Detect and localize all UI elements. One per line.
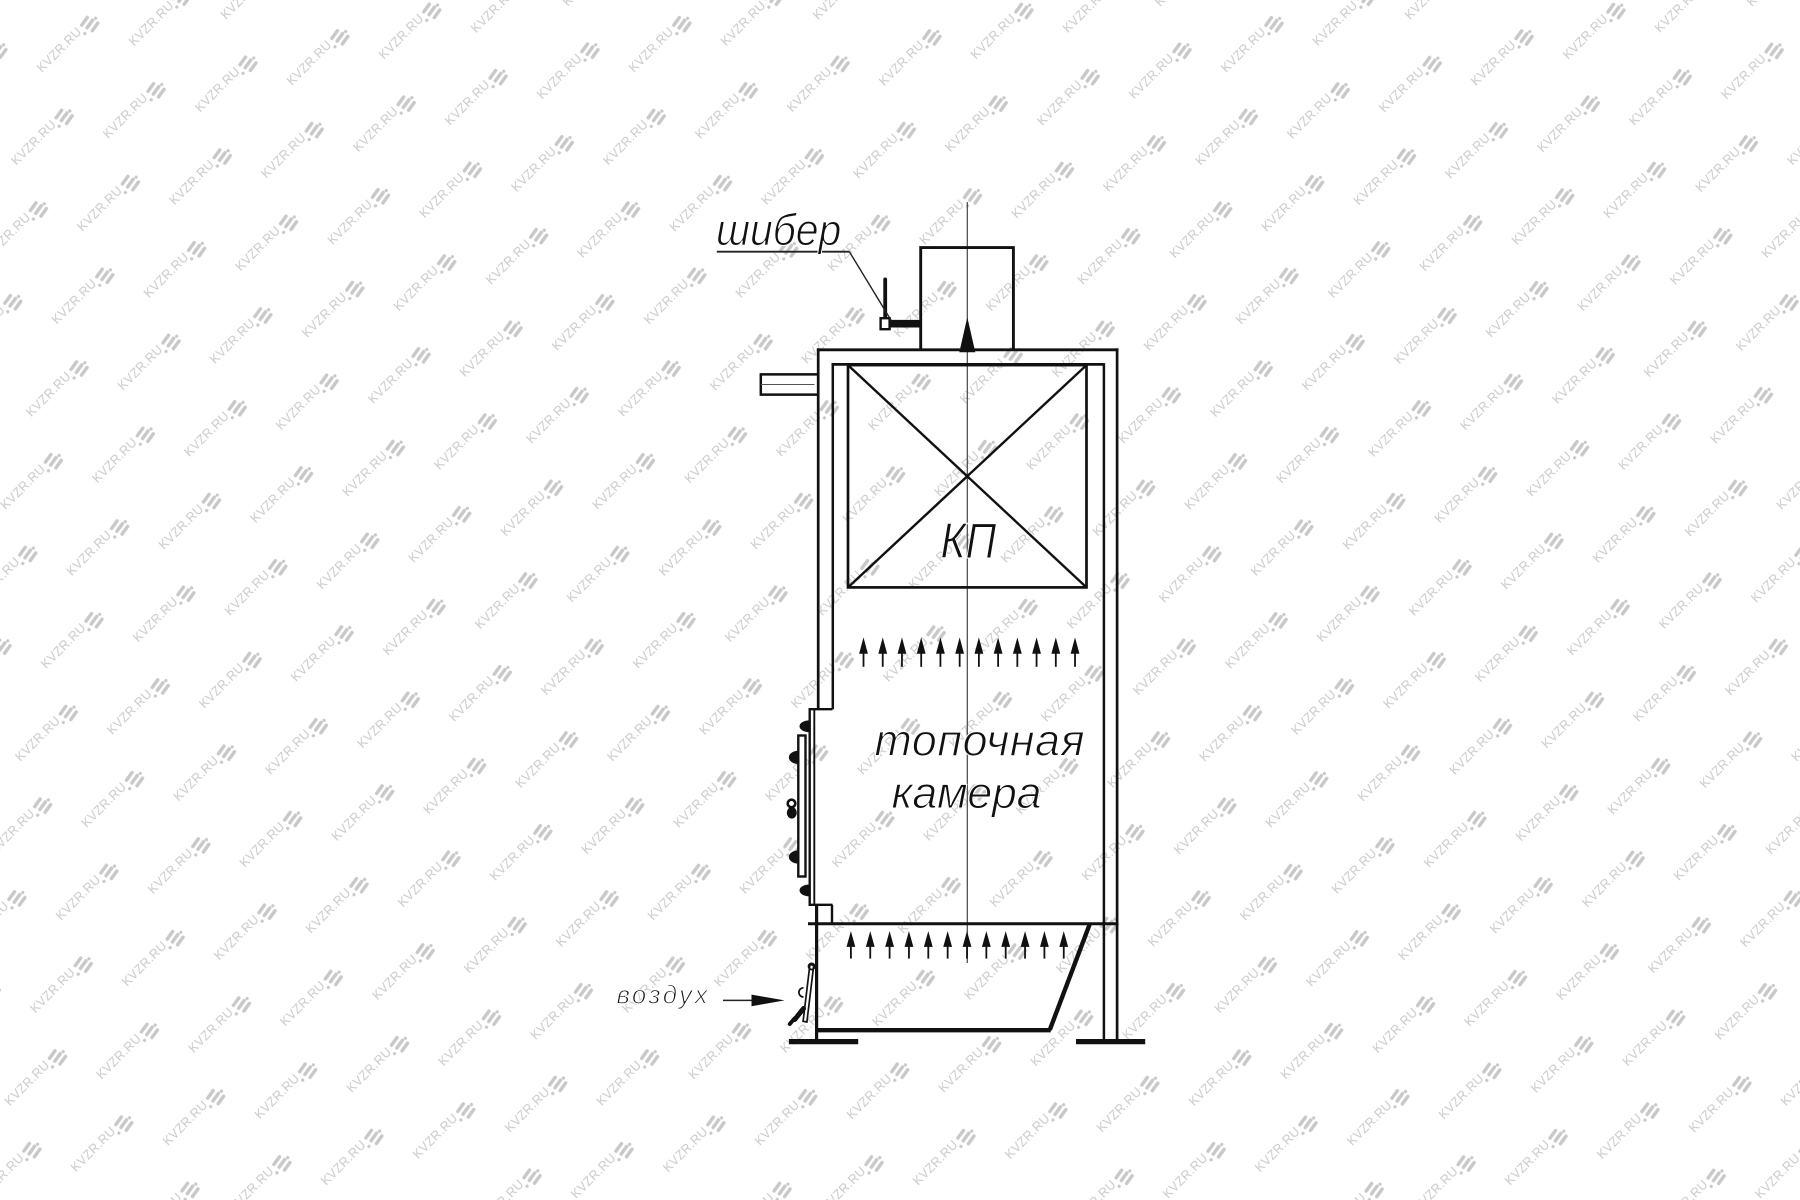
svg-text:КП: КП — [941, 513, 997, 569]
svg-text:камера: камера — [892, 769, 1042, 818]
svg-text:топочная: топочная — [875, 716, 1085, 765]
svg-text:шибер: шибер — [716, 205, 841, 255]
